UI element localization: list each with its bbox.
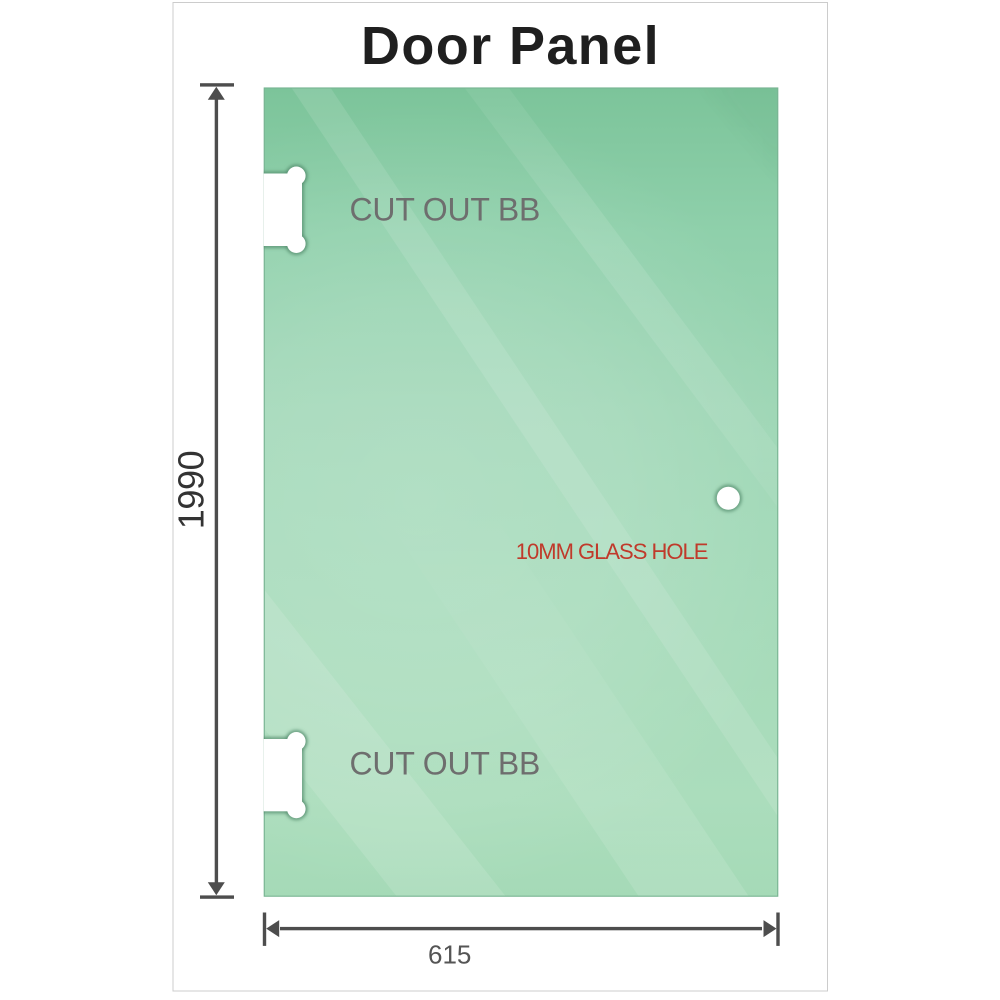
svg-text:1990: 1990: [171, 451, 212, 530]
svg-text:Door Panel: Door Panel: [361, 16, 660, 76]
svg-text:10MM GLASS HOLE: 10MM GLASS HOLE: [516, 539, 708, 564]
svg-text:CUT OUT BB: CUT OUT BB: [350, 746, 541, 782]
svg-text:CUT OUT BB: CUT OUT BB: [350, 192, 541, 228]
svg-text:615: 615: [428, 940, 471, 970]
